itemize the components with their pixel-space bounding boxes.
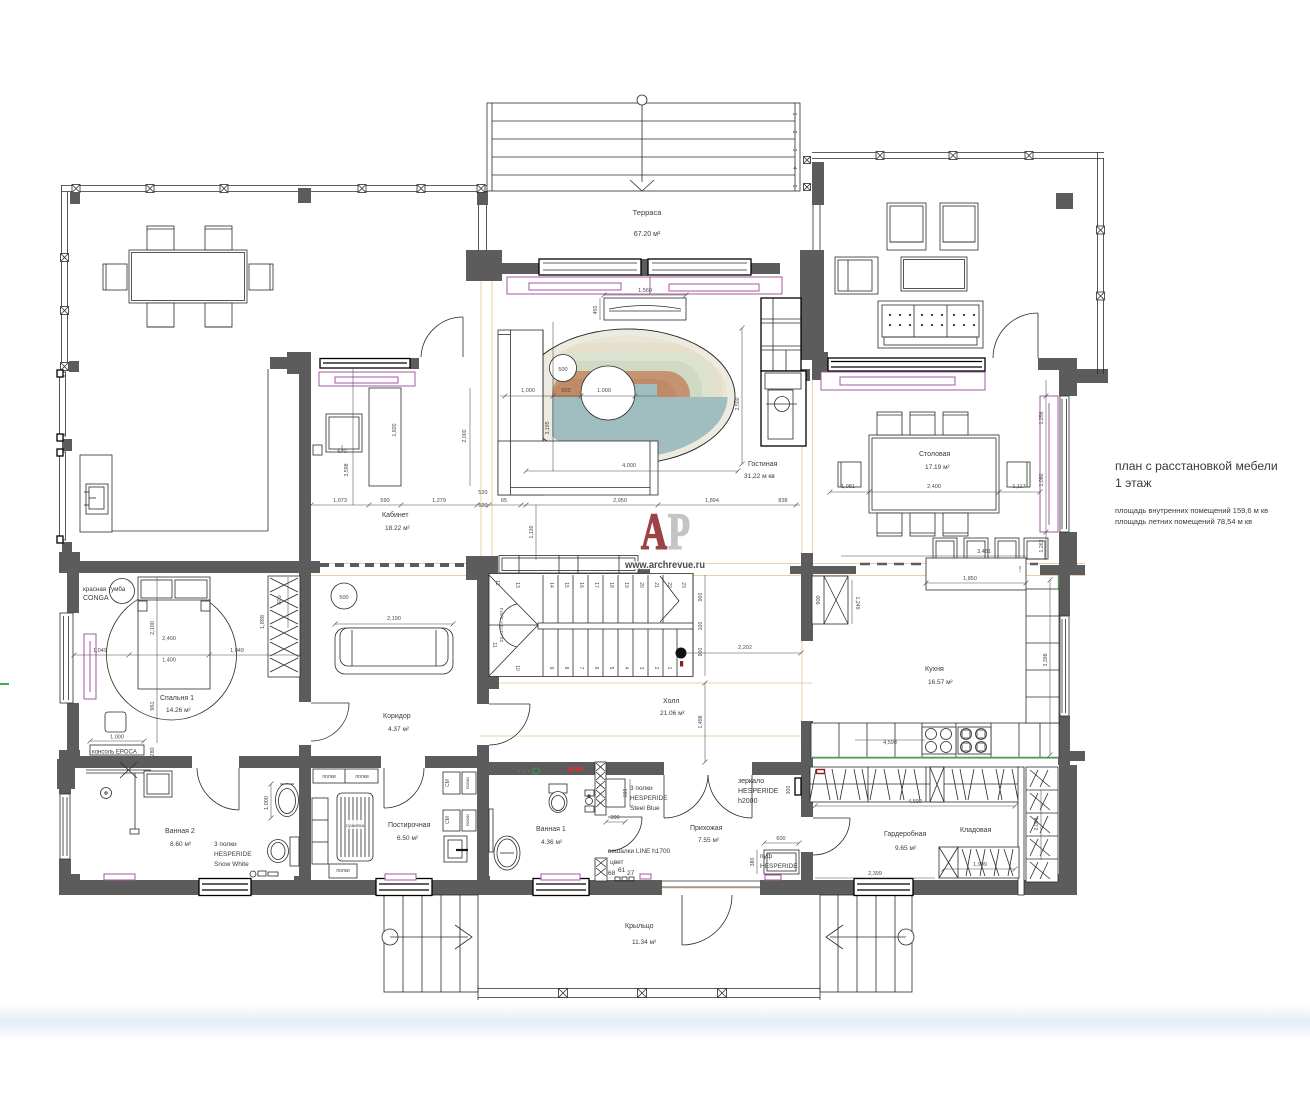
svg-text:1,898: 1,898 bbox=[260, 615, 266, 629]
svg-text:600: 600 bbox=[623, 789, 629, 798]
svg-text:2,500: 2,500 bbox=[735, 397, 741, 410]
svg-text:1,080: 1,080 bbox=[1039, 473, 1045, 486]
svg-text:1,081: 1,081 bbox=[841, 484, 855, 490]
svg-text:3: 3 bbox=[791, 149, 797, 152]
svg-text:2,100: 2,100 bbox=[150, 621, 156, 635]
svg-text:Холл: Холл bbox=[663, 698, 680, 705]
svg-text:Гостиная: Гостиная bbox=[748, 461, 778, 468]
svg-text:консоль EPOCA: консоль EPOCA bbox=[92, 750, 137, 756]
svg-text:14.26 м²: 14.26 м² bbox=[166, 707, 192, 714]
svg-text:31,22 м кв: 31,22 м кв bbox=[744, 473, 775, 480]
svg-text:500: 500 bbox=[558, 367, 567, 373]
svg-text:11.34 м²: 11.34 м² bbox=[632, 939, 657, 946]
svg-text:7: 7 bbox=[578, 667, 584, 670]
svg-text:2,098: 2,098 bbox=[1034, 817, 1040, 830]
svg-text:вешалки LINE h1700: вешалки LINE h1700 bbox=[608, 848, 671, 855]
svg-text:1,820: 1,820 bbox=[392, 423, 398, 436]
svg-text:Столовая: Столовая bbox=[919, 451, 951, 458]
svg-text:27: 27 bbox=[627, 870, 635, 877]
svg-text:полки: полки bbox=[322, 774, 335, 780]
svg-text:300: 300 bbox=[610, 815, 619, 821]
svg-text:670: 670 bbox=[337, 449, 346, 455]
svg-text:68: 68 bbox=[608, 870, 616, 877]
svg-text:www.archrevue.ru: www.archrevue.ru bbox=[624, 560, 705, 571]
svg-text:1,279: 1,279 bbox=[432, 498, 446, 504]
svg-text:Кабинет: Кабинет bbox=[382, 511, 409, 519]
svg-text:2,190: 2,190 bbox=[387, 616, 401, 622]
svg-text:1,894: 1,894 bbox=[705, 498, 719, 504]
svg-text:900: 900 bbox=[698, 593, 704, 602]
svg-text:1,117: 1,117 bbox=[1012, 484, 1025, 490]
svg-text:Постирочная: Постирочная bbox=[388, 822, 431, 829]
svg-text:полки: полки bbox=[355, 774, 368, 780]
svg-text:4.36 м²: 4.36 м² bbox=[541, 839, 563, 846]
svg-text:17: 17 bbox=[593, 582, 599, 588]
svg-text:2,400: 2,400 bbox=[162, 636, 176, 642]
svg-text:сушилка: сушилка bbox=[346, 823, 365, 828]
svg-text:Ванная 2: Ванная 2 bbox=[165, 828, 195, 835]
svg-text:3,398: 3,398 bbox=[1043, 653, 1049, 666]
svg-text:1,130: 1,130 bbox=[529, 525, 535, 538]
svg-text:7.55 м²: 7.55 м² bbox=[698, 837, 720, 844]
svg-text:18: 18 bbox=[608, 582, 614, 588]
svg-text:838: 838 bbox=[778, 498, 787, 504]
svg-text:Snow White: Snow White bbox=[214, 861, 249, 868]
svg-text:Прихожая: Прихожая bbox=[690, 825, 723, 832]
svg-text:9: 9 bbox=[548, 667, 554, 670]
svg-text:1,049: 1,049 bbox=[93, 648, 107, 654]
svg-text:красная тумба: красная тумба bbox=[83, 585, 126, 593]
svg-text:16: 16 bbox=[578, 582, 584, 588]
svg-text:Кладовая: Кладовая bbox=[960, 827, 992, 834]
svg-text:1.000: 1.000 bbox=[597, 388, 611, 394]
svg-text:2,400: 2,400 bbox=[927, 484, 941, 490]
svg-text:HESPERIDE: HESPERIDE bbox=[214, 851, 252, 858]
svg-text:1.000: 1.000 bbox=[110, 735, 124, 741]
svg-text:4,598: 4,598 bbox=[908, 799, 922, 805]
svg-text:1.000: 1.000 bbox=[264, 796, 270, 810]
svg-text:HESPERIDE: HESPERIDE bbox=[738, 788, 779, 795]
svg-text:4,000: 4,000 bbox=[622, 463, 636, 469]
svg-text:61: 61 bbox=[618, 867, 626, 874]
svg-text:20: 20 bbox=[638, 582, 644, 588]
svg-text:13: 13 bbox=[514, 582, 520, 588]
svg-text:22: 22 bbox=[666, 582, 672, 588]
svg-text:23: 23 bbox=[680, 582, 686, 588]
svg-text:Гардеробная: Гардеробная bbox=[884, 830, 927, 838]
svg-text:520: 520 bbox=[478, 490, 487, 496]
svg-text:CONGA: CONGA bbox=[83, 595, 109, 602]
svg-text:пуф: пуф bbox=[760, 853, 773, 860]
svg-text:23 x173 = 3,974: 23 x173 = 3,974 bbox=[499, 607, 505, 642]
svg-text:900: 900 bbox=[698, 648, 704, 657]
svg-text:зеркало: зеркало bbox=[738, 778, 764, 785]
svg-text:3,598: 3,598 bbox=[344, 463, 350, 476]
svg-text:Коридор: Коридор bbox=[383, 713, 411, 720]
svg-text:2,950: 2,950 bbox=[613, 498, 627, 504]
svg-text:1,560: 1,560 bbox=[638, 288, 652, 294]
svg-text:цвет: цвет bbox=[610, 859, 624, 866]
svg-text:1,999: 1,999 bbox=[973, 862, 987, 868]
svg-text:9.65 м²: 9.65 м² bbox=[895, 845, 917, 852]
svg-text:900: 900 bbox=[816, 595, 822, 604]
svg-text:16.57 м²: 16.57 м² bbox=[928, 679, 954, 686]
svg-text:!: ! bbox=[1019, 565, 1021, 574]
svg-text:4.37 м²: 4.37 м² bbox=[388, 726, 410, 733]
svg-text:5: 5 bbox=[608, 667, 614, 670]
svg-text:Ванная 1: Ванная 1 bbox=[536, 826, 566, 833]
svg-text:1: 1 bbox=[791, 113, 797, 116]
svg-text:P: P bbox=[668, 504, 690, 561]
svg-text:100: 100 bbox=[698, 622, 704, 631]
svg-text:1,262: 1,262 bbox=[1039, 539, 1045, 552]
svg-text:65: 65 bbox=[501, 498, 507, 504]
svg-text:3: 3 bbox=[638, 667, 644, 670]
svg-text:15: 15 bbox=[563, 582, 569, 588]
svg-text:3 полки: 3 полки bbox=[214, 841, 237, 848]
svg-text:Спальня 1: Спальня 1 bbox=[160, 695, 194, 702]
svg-text:полки: полки bbox=[465, 777, 470, 789]
svg-text:3,195: 3,195 bbox=[545, 421, 551, 434]
svg-text:280: 280 bbox=[150, 747, 156, 756]
svg-text:план с расстановкой мебели: план с расстановкой мебели bbox=[1115, 459, 1278, 473]
svg-text:380: 380 bbox=[750, 858, 756, 867]
svg-text:1,850: 1,850 bbox=[963, 576, 977, 582]
svg-text:4: 4 bbox=[791, 167, 797, 170]
svg-text:HESPERIDE: HESPERIDE bbox=[630, 795, 668, 802]
svg-text:17.19 м²: 17.19 м² bbox=[925, 464, 951, 471]
svg-text:600: 600 bbox=[776, 836, 785, 842]
svg-text:СМ: СМ bbox=[445, 816, 451, 824]
svg-text:8: 8 bbox=[563, 667, 569, 670]
svg-text:1,000: 1,000 bbox=[521, 388, 535, 394]
svg-text:h2000: h2000 bbox=[738, 798, 758, 805]
svg-text:2,202: 2,202 bbox=[738, 645, 752, 651]
svg-text:1,249: 1,249 bbox=[854, 597, 860, 610]
svg-text:19: 19 bbox=[623, 582, 629, 588]
svg-text:67.20 м²: 67.20 м² bbox=[634, 231, 661, 238]
svg-text:Кухня: Кухня bbox=[925, 666, 944, 673]
svg-text:Крыльцо: Крыльцо bbox=[625, 923, 654, 930]
svg-text:12: 12 bbox=[494, 580, 500, 586]
svg-text:1,049: 1,049 bbox=[230, 648, 244, 654]
svg-text:961: 961 bbox=[150, 701, 156, 710]
svg-text:1,073: 1,073 bbox=[333, 498, 347, 504]
svg-text:1,498: 1,498 bbox=[698, 715, 704, 728]
svg-text:4,598: 4,598 bbox=[883, 740, 897, 746]
svg-text:2: 2 bbox=[653, 667, 659, 670]
svg-text:полки: полки bbox=[465, 814, 470, 826]
svg-text:2: 2 bbox=[791, 131, 797, 134]
svg-text:площадь внутренних помещений 1: площадь внутренних помещений 159,6 м кв bbox=[1115, 506, 1268, 515]
svg-text:A: A bbox=[641, 504, 667, 561]
svg-text:11: 11 bbox=[491, 642, 497, 647]
svg-text:590: 590 bbox=[380, 498, 389, 504]
svg-text:6.50 м²: 6.50 м² bbox=[397, 835, 419, 842]
svg-text:2,000: 2,000 bbox=[462, 429, 468, 442]
svg-text:10: 10 bbox=[514, 665, 520, 671]
svg-text:14: 14 bbox=[548, 582, 554, 588]
svg-text:600: 600 bbox=[277, 595, 283, 604]
svg-text:503: 503 bbox=[561, 388, 570, 394]
svg-text:6: 6 bbox=[593, 667, 599, 670]
svg-text:18.22 м²: 18.22 м² bbox=[385, 525, 411, 532]
svg-text:2,399: 2,399 bbox=[868, 871, 882, 877]
svg-text:1,256: 1,256 bbox=[1039, 411, 1045, 424]
svg-text:3 полки: 3 полки bbox=[630, 785, 653, 792]
svg-text:1 этаж: 1 этаж bbox=[1115, 476, 1152, 490]
svg-text:5: 5 bbox=[791, 185, 797, 188]
svg-text:площадь летних помещений 78,5: площадь летних помещений 78,54 м кв bbox=[1115, 517, 1252, 526]
svg-text:1,400: 1,400 bbox=[162, 658, 176, 664]
svg-text:HESPERIDE: HESPERIDE bbox=[760, 863, 798, 870]
svg-text:полки: полки bbox=[336, 868, 349, 874]
svg-text:СМ: СМ bbox=[445, 779, 451, 787]
svg-text:300: 300 bbox=[786, 786, 792, 795]
svg-text:520: 520 bbox=[478, 503, 487, 509]
svg-text:500: 500 bbox=[339, 595, 348, 601]
svg-text:450: 450 bbox=[593, 306, 599, 315]
svg-text:21: 21 bbox=[653, 582, 659, 588]
svg-text:Терраса: Терраса bbox=[633, 208, 663, 217]
svg-text:21.06 м²: 21.06 м² bbox=[660, 710, 686, 717]
svg-text:4: 4 bbox=[623, 667, 629, 670]
svg-text:3,481: 3,481 bbox=[977, 549, 991, 555]
svg-text:Steel Blue: Steel Blue bbox=[630, 805, 660, 812]
svg-text:8.60 м²: 8.60 м² bbox=[170, 841, 192, 848]
svg-text:1: 1 bbox=[666, 667, 672, 670]
